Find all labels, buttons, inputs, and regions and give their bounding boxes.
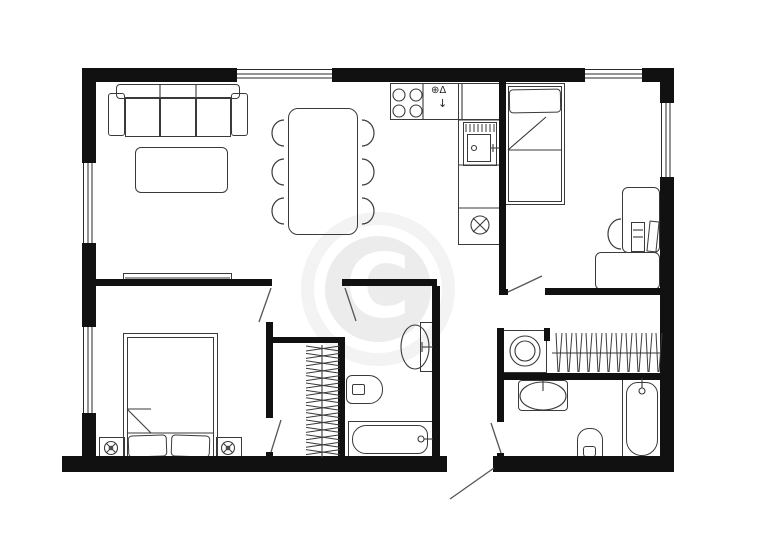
- bathtub-right-inner: [626, 382, 658, 456]
- wall-bedroom2-south: [545, 288, 660, 295]
- closet1-hanger: [306, 376, 340, 381]
- closet1-hanger: [306, 413, 340, 418]
- closet1-hanger: [306, 442, 340, 447]
- door-bedroom2: [508, 276, 542, 292]
- vanity-sink-right: [518, 380, 568, 411]
- sofa-seat-3: [196, 97, 231, 137]
- desk-lower: [595, 252, 660, 290]
- closet1-hanger: [306, 398, 340, 403]
- closet2-hanger: [559, 333, 562, 372]
- closet2-hanger: [616, 333, 618, 372]
- closet1-hanger: [306, 383, 340, 388]
- kitchen-tap-symbol: ⊕Δ: [431, 86, 446, 96]
- wall-bath1-east: [432, 286, 440, 456]
- closet2-hanger: [639, 333, 642, 372]
- kitchen-sink-inner: [467, 134, 491, 162]
- window-left-bedroom1: [82, 327, 96, 413]
- dining-table: [288, 108, 358, 235]
- wall-kitchen-divider: [499, 82, 506, 295]
- wall-living-bedroom1: [96, 279, 272, 286]
- closet2-hanger: [576, 333, 578, 372]
- closet1-hanger: [306, 353, 340, 358]
- closet1-hanger: [306, 390, 340, 395]
- pillow-double-right: [171, 434, 211, 457]
- sofa-arm-right: [231, 93, 248, 136]
- closet1-hanger: [306, 390, 340, 395]
- window-top-bedroom2: [585, 68, 642, 82]
- door-bedroom1: [259, 288, 271, 322]
- window-right-bedroom2: [660, 103, 674, 177]
- pillow-single: [509, 89, 561, 114]
- closet2-hanger: [566, 333, 568, 372]
- closet2-hanger: [629, 333, 632, 372]
- closet1-hanger: [306, 376, 340, 381]
- closet1-hanger: [306, 413, 340, 418]
- closet2-hanger: [569, 333, 572, 372]
- closet2-hanger: [626, 333, 628, 372]
- coffee-table: [135, 147, 228, 193]
- window-left-living: [82, 163, 96, 243]
- bathtub-mid-inner: [352, 425, 428, 454]
- closet2-hanger: [646, 333, 648, 372]
- closet2-hanger: [599, 333, 602, 372]
- wall-kitchen-divider-stub: [499, 289, 508, 295]
- closet1-hanger: [306, 427, 340, 432]
- closet2-hanger: [609, 333, 612, 372]
- closet2-hanger: [636, 333, 638, 372]
- closet1-hanger: [306, 383, 340, 388]
- dining-chair-left-2: [272, 159, 284, 185]
- closet2-hanger: [656, 333, 658, 372]
- door-entry: [450, 468, 494, 499]
- wall-closet1-east: [338, 337, 345, 456]
- closet1-hanger: [306, 427, 340, 432]
- dining-chair-right-1: [362, 120, 374, 146]
- closet1-hanger: [306, 398, 340, 403]
- floor-plan: C ⊕Δ↓: [0, 0, 757, 554]
- closet2-hanger: [596, 333, 598, 372]
- door-closet1: [271, 420, 281, 452]
- dining-chair-left-3: [272, 198, 284, 224]
- window-top-living: [237, 68, 332, 82]
- dining-chair-right-2: [362, 159, 374, 185]
- toilet-mid-tank: [352, 384, 365, 395]
- closet1-hanger: [306, 353, 340, 358]
- closet1-hanger: [306, 405, 340, 410]
- closet1-hanger: [306, 361, 340, 366]
- wall-outer-bottom-right: [493, 456, 674, 472]
- closet1-hanger: [306, 435, 340, 440]
- closet2-hanger: [619, 333, 622, 372]
- washing-machine: [503, 330, 547, 373]
- pillow-double-left: [128, 434, 168, 457]
- wall-closet1-north: [266, 337, 343, 343]
- closet1-hanger: [306, 450, 340, 455]
- closet1-hanger: [306, 435, 340, 440]
- closet2-hanger: [586, 333, 588, 372]
- wall-corridor-east-stub: [497, 453, 504, 460]
- closet2-hanger: [649, 333, 652, 372]
- closet2-hanger: [556, 333, 558, 372]
- desk-monitor: [631, 222, 645, 252]
- wall-washer-post: [544, 328, 550, 341]
- closet1-hanger: [306, 420, 340, 425]
- closet1-hanger: [306, 450, 340, 455]
- closet1-hanger: [306, 420, 340, 425]
- closet1-hanger: [306, 442, 340, 447]
- watermark-letter: C: [346, 235, 411, 338]
- closet1-hanger: [306, 405, 340, 410]
- closet1-hanger: [306, 361, 340, 366]
- wall-laundry-bath-divider: [497, 373, 662, 380]
- wall-outer-bottom-left: [62, 456, 447, 472]
- wall-bedroom1-east-stub: [266, 452, 273, 460]
- sofa-seat-1: [125, 97, 160, 137]
- watermark-disc: C: [325, 236, 431, 342]
- sofa-seat-2: [160, 97, 196, 137]
- closet2-hanger: [589, 333, 592, 372]
- closet2-hanger: [579, 333, 582, 372]
- door-bath2: [491, 423, 501, 453]
- desk-chair: [608, 219, 621, 249]
- closet1-hanger: [306, 368, 340, 373]
- kitchen-arrow-symbol: ↓: [438, 98, 447, 109]
- wall-bath1-north: [342, 279, 437, 286]
- dining-chair-left-1: [272, 120, 284, 146]
- closet1-hanger: [306, 368, 340, 373]
- closet2-hanger: [606, 333, 608, 372]
- sofa-arm-left: [108, 93, 125, 136]
